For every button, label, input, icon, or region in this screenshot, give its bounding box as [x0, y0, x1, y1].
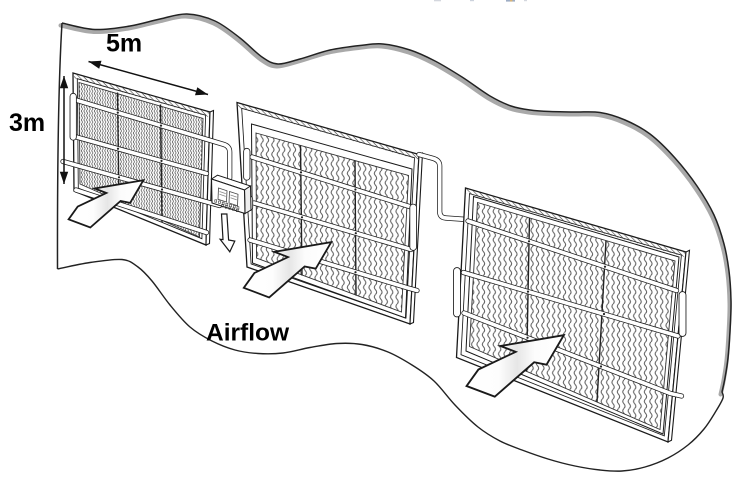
- svg-text:Airflow: Airflow: [206, 320, 290, 347]
- svg-text:5m: 5m: [106, 30, 142, 58]
- svg-text:3m: 3m: [9, 109, 45, 137]
